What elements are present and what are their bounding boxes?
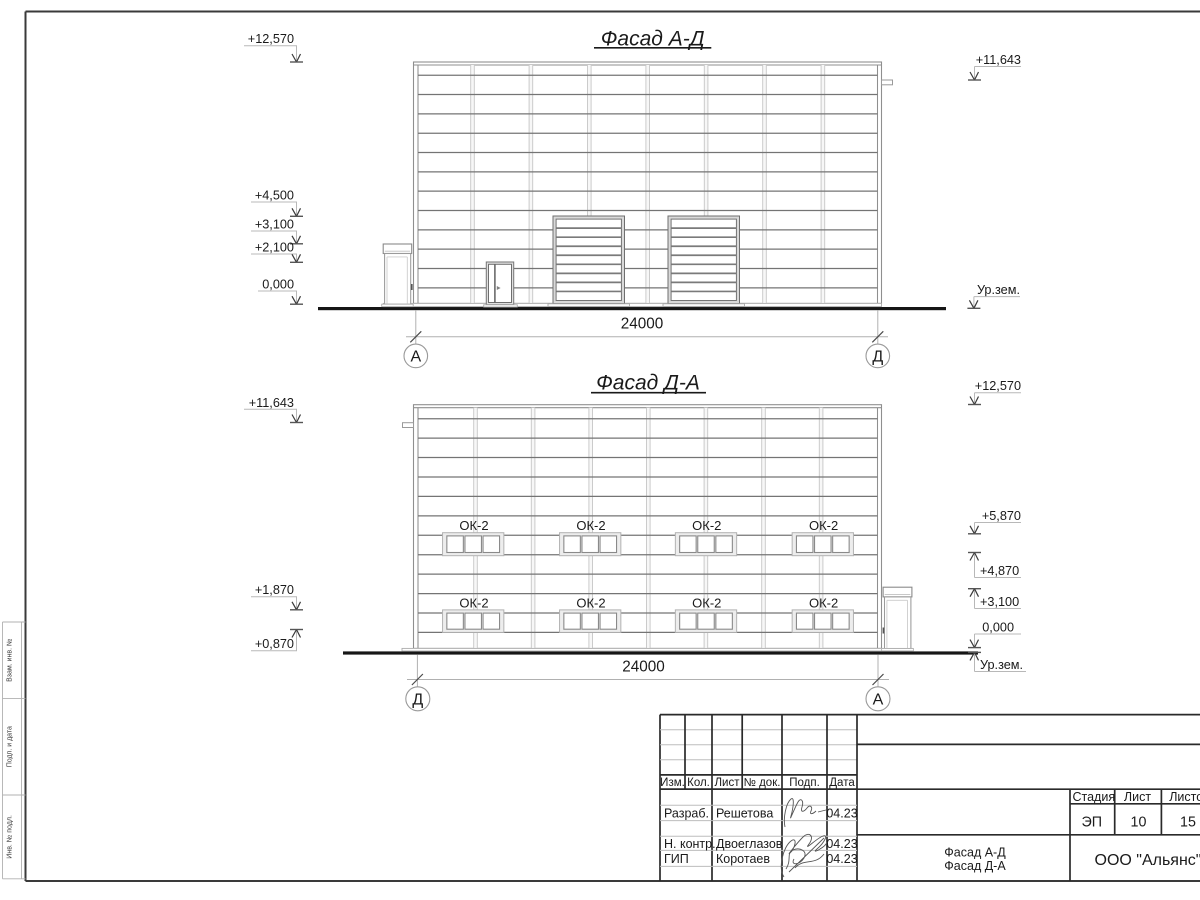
svg-text:+1,870: +1,870	[255, 583, 294, 597]
svg-text:Изм.: Изм.	[660, 777, 685, 789]
svg-text:04.23: 04.23	[826, 837, 857, 851]
svg-text:Д: Д	[412, 691, 423, 708]
svg-text:15: 15	[1180, 815, 1196, 831]
svg-text:ОК-2: ОК-2	[809, 518, 838, 533]
svg-text:+3,100: +3,100	[980, 595, 1019, 609]
svg-text:ГИП: ГИП	[664, 852, 689, 866]
svg-text:ОК-2: ОК-2	[459, 596, 488, 611]
svg-text:ОК-2: ОК-2	[809, 596, 838, 611]
svg-text:А: А	[410, 349, 421, 366]
svg-text:Лист: Лист	[1124, 790, 1151, 804]
svg-text:04.23: 04.23	[826, 807, 857, 821]
svg-text:+4,870: +4,870	[980, 564, 1019, 578]
svg-text:24000: 24000	[622, 659, 665, 676]
svg-text:Фасад Д-А: Фасад Д-А	[596, 371, 700, 394]
svg-text:Фасад Д-А: Фасад Д-А	[944, 859, 1006, 873]
svg-text:+11,643: +11,643	[249, 396, 294, 410]
svg-text:А: А	[873, 691, 884, 708]
svg-text:Ур.зем.: Ур.зем.	[980, 658, 1023, 672]
svg-text:ОК-2: ОК-2	[692, 596, 721, 611]
svg-text:0,000: 0,000	[262, 278, 294, 292]
svg-text:ЭП: ЭП	[1082, 815, 1103, 831]
svg-text:Стадия: Стадия	[1072, 790, 1115, 804]
svg-text:0,000: 0,000	[982, 621, 1014, 635]
svg-text:ОК-2: ОК-2	[692, 518, 721, 533]
svg-text:ОК-2: ОК-2	[576, 518, 605, 533]
svg-text:ООО "Альянс": ООО "Альянс"	[1095, 852, 1200, 869]
svg-text:10: 10	[1131, 815, 1147, 831]
svg-text:Взам. инв. №: Взам. инв. №	[7, 639, 14, 682]
svg-text:Коротаев: Коротаев	[716, 852, 770, 866]
svg-text:Инв. № подл.: Инв. № подл.	[7, 815, 14, 859]
svg-text:+2,100: +2,100	[255, 241, 294, 255]
svg-text:Решетова: Решетова	[716, 807, 773, 821]
svg-text:№ док.: № док.	[744, 777, 781, 789]
svg-text:Дата: Дата	[829, 777, 855, 789]
svg-text:+3,100: +3,100	[255, 218, 294, 232]
svg-text:Фасад А-Д: Фасад А-Д	[601, 27, 705, 50]
svg-text:Подп. и дата: Подп. и дата	[7, 726, 14, 767]
svg-text:Кол.: Кол.	[687, 777, 710, 789]
svg-text:+12,570: +12,570	[248, 32, 294, 46]
svg-text:04.23: 04.23	[826, 852, 857, 866]
svg-text:+12,570: +12,570	[975, 379, 1021, 393]
svg-text:Лист: Лист	[715, 777, 741, 789]
svg-text:Разраб.: Разраб.	[664, 806, 709, 820]
svg-text:Д: Д	[872, 349, 883, 366]
svg-text:ОК-2: ОК-2	[576, 596, 605, 611]
svg-text:+0,870: +0,870	[255, 637, 294, 651]
svg-text:Ур.зем.: Ур.зем.	[977, 283, 1020, 297]
svg-text:Листов: Листов	[1169, 790, 1200, 804]
svg-text:Подп.: Подп.	[789, 777, 820, 789]
svg-text:Н. контр.: Н. контр.	[664, 837, 716, 851]
svg-text:+4,500: +4,500	[255, 189, 294, 203]
svg-text:24000: 24000	[621, 315, 664, 332]
svg-text:+11,643: +11,643	[976, 53, 1021, 67]
svg-text:Фасад А-Д: Фасад А-Д	[944, 846, 1006, 860]
svg-text:ОК-2: ОК-2	[459, 518, 488, 533]
svg-text:Двоеглазов: Двоеглазов	[716, 837, 783, 851]
svg-text:+5,870: +5,870	[982, 509, 1021, 523]
